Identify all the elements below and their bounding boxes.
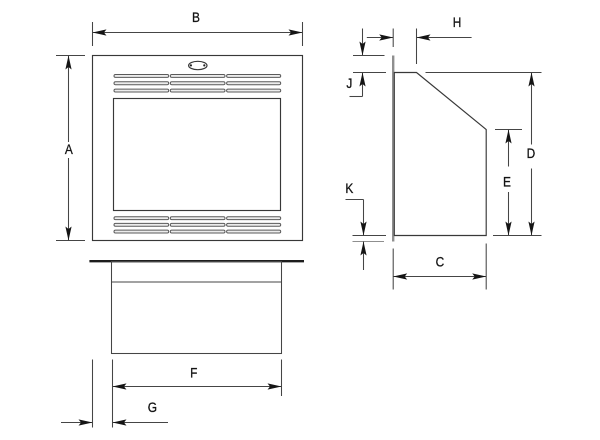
svg-text:D: D	[527, 145, 536, 161]
svg-text:E: E	[503, 174, 511, 190]
svg-text:C: C	[436, 254, 445, 270]
svg-text:B: B	[192, 9, 200, 25]
svg-text:J: J	[346, 75, 352, 91]
svg-text:H: H	[453, 14, 462, 30]
svg-text:K: K	[345, 180, 353, 196]
svg-text:G: G	[148, 399, 157, 415]
svg-text:A: A	[65, 141, 73, 157]
svg-text:F: F	[190, 365, 197, 381]
